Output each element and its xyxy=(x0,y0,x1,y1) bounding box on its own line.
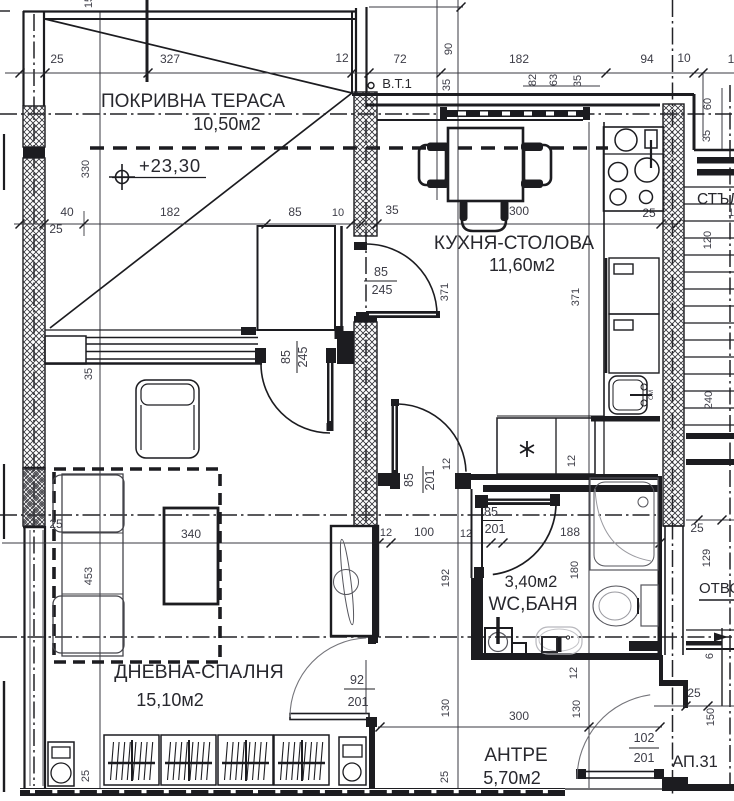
svg-text:240: 240 xyxy=(703,391,715,409)
svg-text:АНТРЕ: АНТРЕ xyxy=(484,745,547,766)
svg-text:129: 129 xyxy=(701,549,713,567)
svg-text:245: 245 xyxy=(296,347,310,368)
svg-text:25: 25 xyxy=(642,206,656,220)
svg-text:25: 25 xyxy=(49,517,63,531)
svg-text:25: 25 xyxy=(687,686,701,700)
svg-text:40: 40 xyxy=(60,205,74,219)
svg-text:ДНЕВНА-СПАЛНЯ: ДНЕВНА-СПАЛНЯ xyxy=(114,661,283,683)
svg-text:120: 120 xyxy=(702,231,714,249)
svg-text:85: 85 xyxy=(288,205,302,219)
svg-text:100: 100 xyxy=(414,525,434,539)
svg-text:182: 182 xyxy=(509,52,529,66)
svg-text:ПОКРИВНА ТЕРАСА: ПОКРИВНА ТЕРАСА xyxy=(101,91,285,112)
svg-text:АП.31: АП.31 xyxy=(672,753,718,771)
svg-text:182: 182 xyxy=(160,205,180,219)
svg-text:85: 85 xyxy=(484,505,498,519)
svg-text:6: 6 xyxy=(704,653,716,659)
svg-text:12: 12 xyxy=(335,51,349,65)
svg-text:СМ: СМ xyxy=(648,390,655,400)
svg-text:12: 12 xyxy=(441,458,453,470)
svg-text:94: 94 xyxy=(640,52,654,66)
svg-text:СТЪЛБИЩЕ: СТЪЛБИЩЕ xyxy=(697,191,734,208)
svg-text:35: 35 xyxy=(701,130,713,142)
svg-text:92: 92 xyxy=(350,673,364,687)
svg-text:12: 12 xyxy=(568,667,580,679)
svg-text:85: 85 xyxy=(402,473,416,487)
svg-text:453: 453 xyxy=(83,567,95,585)
svg-text:201: 201 xyxy=(485,522,506,536)
svg-text:10: 10 xyxy=(332,207,344,219)
svg-text:12: 12 xyxy=(566,455,578,467)
svg-text:25: 25 xyxy=(439,771,451,783)
svg-text:25: 25 xyxy=(80,770,92,782)
svg-text:35: 35 xyxy=(83,368,95,380)
svg-text:15,10м2: 15,10м2 xyxy=(136,690,203,710)
svg-text:12: 12 xyxy=(460,528,472,540)
svg-text:300: 300 xyxy=(509,709,529,723)
svg-text:ОТВОР: ОТВОР xyxy=(699,580,734,597)
svg-text:85: 85 xyxy=(279,350,293,364)
svg-text:25: 25 xyxy=(49,222,63,236)
svg-text:180: 180 xyxy=(569,561,581,579)
svg-text:72: 72 xyxy=(393,52,407,66)
svg-text:340: 340 xyxy=(181,527,201,541)
svg-text:130: 130 xyxy=(571,700,583,718)
svg-text:330: 330 xyxy=(80,160,92,178)
svg-text:82: 82 xyxy=(527,74,539,86)
svg-text:25: 25 xyxy=(50,52,64,66)
svg-text:130: 130 xyxy=(440,699,452,717)
svg-text:WC,БАНЯ: WC,БАНЯ xyxy=(488,594,577,615)
svg-text:150: 150 xyxy=(705,708,717,726)
svg-text:11,60м2: 11,60м2 xyxy=(489,255,555,275)
svg-text:85: 85 xyxy=(374,265,388,279)
svg-text:371: 371 xyxy=(439,283,451,301)
svg-text:300: 300 xyxy=(509,204,529,218)
svg-text:327: 327 xyxy=(160,52,180,66)
svg-text:3,40м2: 3,40м2 xyxy=(505,573,558,591)
svg-text:+23,30: +23,30 xyxy=(139,155,201,176)
svg-text:201: 201 xyxy=(634,751,655,765)
svg-text:63: 63 xyxy=(548,74,560,86)
svg-text:1: 1 xyxy=(728,52,734,66)
svg-text:35: 35 xyxy=(441,79,453,91)
svg-text:5,70м2: 5,70м2 xyxy=(483,768,540,788)
svg-text:35: 35 xyxy=(572,75,584,87)
svg-text:КУХНЯ-СТОЛОВА: КУХНЯ-СТОЛОВА xyxy=(434,233,594,254)
svg-text:В.Т.1: В.Т.1 xyxy=(382,76,412,91)
svg-text:35: 35 xyxy=(385,203,399,217)
svg-text:25: 25 xyxy=(690,521,704,535)
svg-text:201: 201 xyxy=(348,695,369,709)
svg-text:102: 102 xyxy=(634,731,655,745)
svg-text:10,50м2: 10,50м2 xyxy=(193,114,260,134)
svg-text:60: 60 xyxy=(702,98,714,110)
svg-text:188: 188 xyxy=(560,525,580,539)
svg-text:15: 15 xyxy=(83,0,95,8)
svg-text:90: 90 xyxy=(443,43,455,55)
svg-text:1: 1 xyxy=(728,207,734,219)
svg-text:192: 192 xyxy=(440,569,452,587)
svg-text:245: 245 xyxy=(372,283,393,297)
svg-text:201: 201 xyxy=(423,470,437,491)
svg-text:12: 12 xyxy=(380,527,392,539)
svg-text:10: 10 xyxy=(677,51,691,65)
svg-text:371: 371 xyxy=(570,288,582,306)
